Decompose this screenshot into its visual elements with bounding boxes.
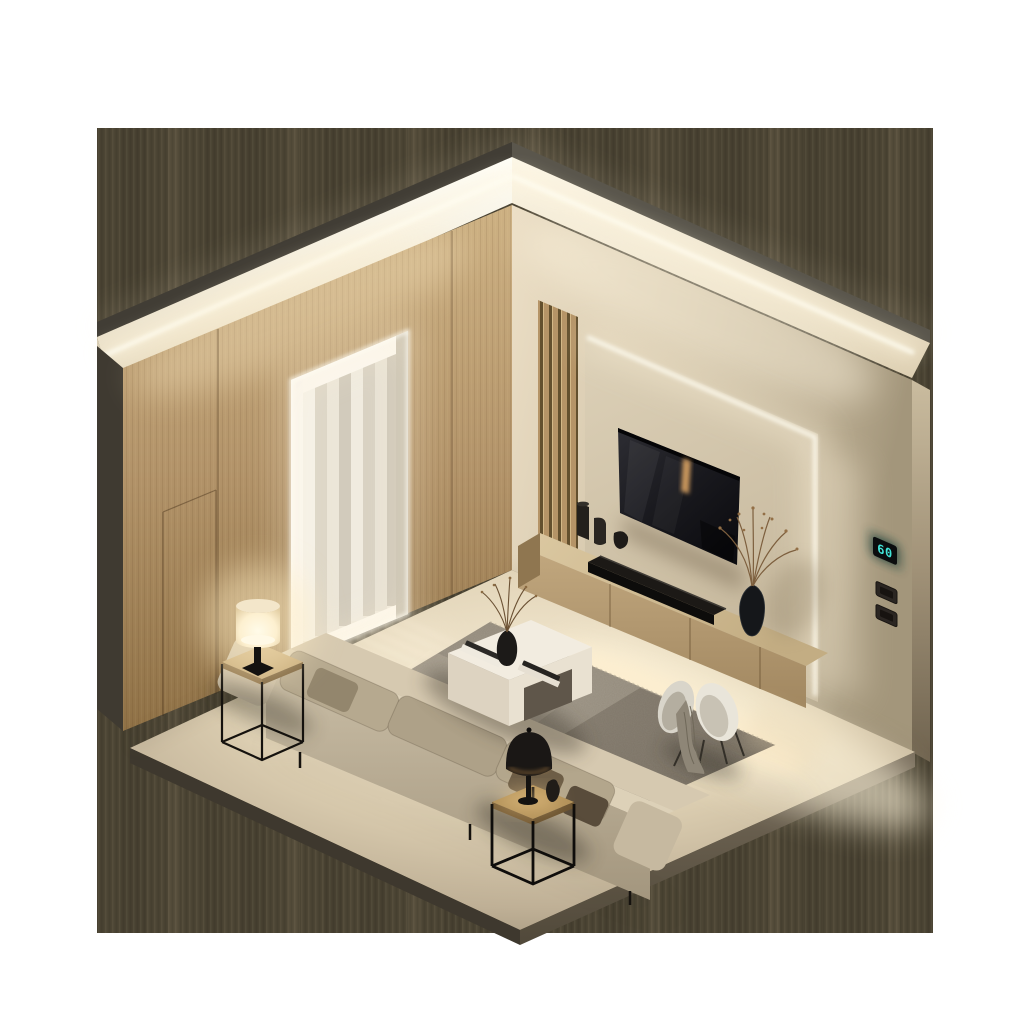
curtains — [303, 349, 399, 641]
isometric-living-room-render: 60 — [0, 0, 1024, 1024]
lamp-stem — [526, 776, 531, 800]
living-room-scene: 60 — [0, 0, 1024, 1024]
lamp-shade-top — [236, 599, 280, 613]
lamp-shade-glow — [241, 635, 275, 645]
right-wall-return — [912, 380, 930, 762]
panel-edge-wash — [820, 448, 862, 700]
slat-panel — [538, 300, 578, 560]
lamp-foot — [518, 797, 538, 805]
left-wall-end-face — [97, 346, 123, 731]
dome-finial — [527, 728, 532, 733]
table-lamp-white — [202, 564, 314, 676]
